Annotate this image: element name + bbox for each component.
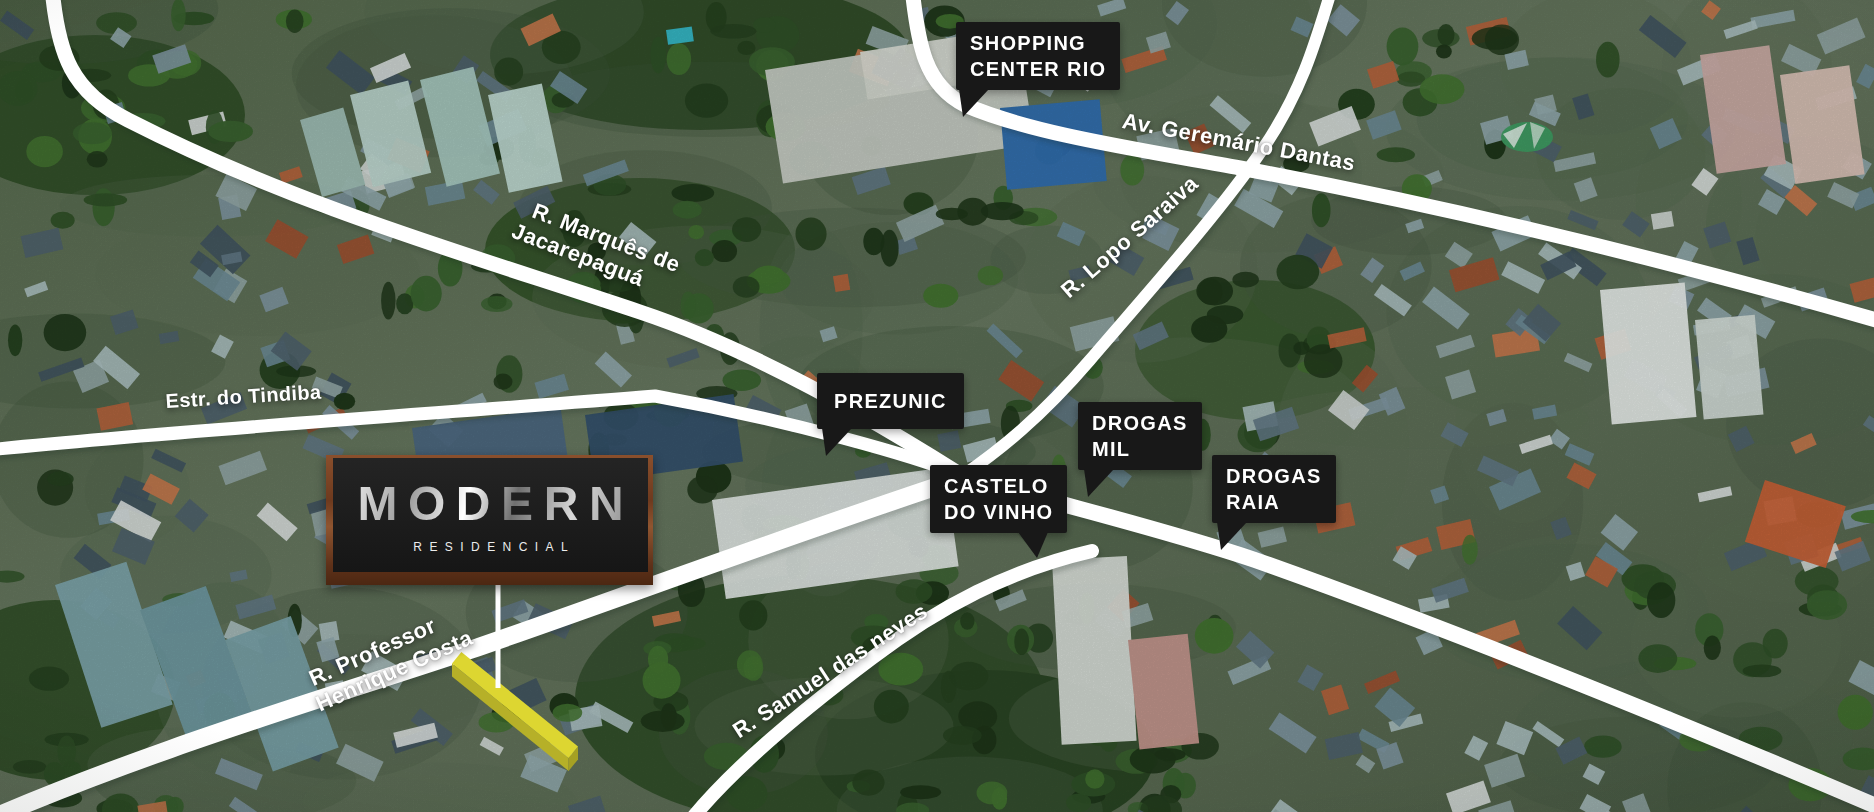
location-map: Av. Geremário Dantas R. Marquês de Jacar… <box>0 0 1874 812</box>
callout-castelo-do-vinho: CASTELO DO VINHO <box>930 465 1067 533</box>
callout-text: SHOPPING <box>970 30 1106 56</box>
callout-drogas-mil: DROGAS MIL <box>1078 402 1202 470</box>
callout-tail <box>1083 469 1115 497</box>
callout-text: MIL <box>1092 436 1188 462</box>
callout-drogas-raia: DROGAS RAIA <box>1212 455 1336 523</box>
logo-brand-name: MODERN <box>347 476 634 531</box>
callout-tail <box>821 428 853 456</box>
modern-logo: MODERN RESIDENCIAL <box>333 458 648 572</box>
callout-text: CENTER RIO <box>970 56 1106 82</box>
callout-shopping-center-rio: SHOPPING CENTER RIO <box>956 22 1120 90</box>
callout-tail <box>1216 522 1248 550</box>
callout-prezunic: PREZUNIC <box>817 373 964 429</box>
callout-tail <box>1017 532 1049 560</box>
callout-text: DROGAS <box>1092 410 1188 436</box>
callout-text: DO VINHO <box>944 499 1053 525</box>
callout-text: CASTELO <box>944 473 1053 499</box>
logo-plate: MODERN RESIDENCIAL <box>333 458 648 572</box>
callout-text: RAIA <box>1226 489 1322 515</box>
callout-text: PREZUNIC <box>834 388 947 414</box>
logo-brand-subtitle: RESIDENCIAL <box>406 540 575 554</box>
callout-tail <box>958 89 990 117</box>
callout-text: DROGAS <box>1226 463 1322 489</box>
